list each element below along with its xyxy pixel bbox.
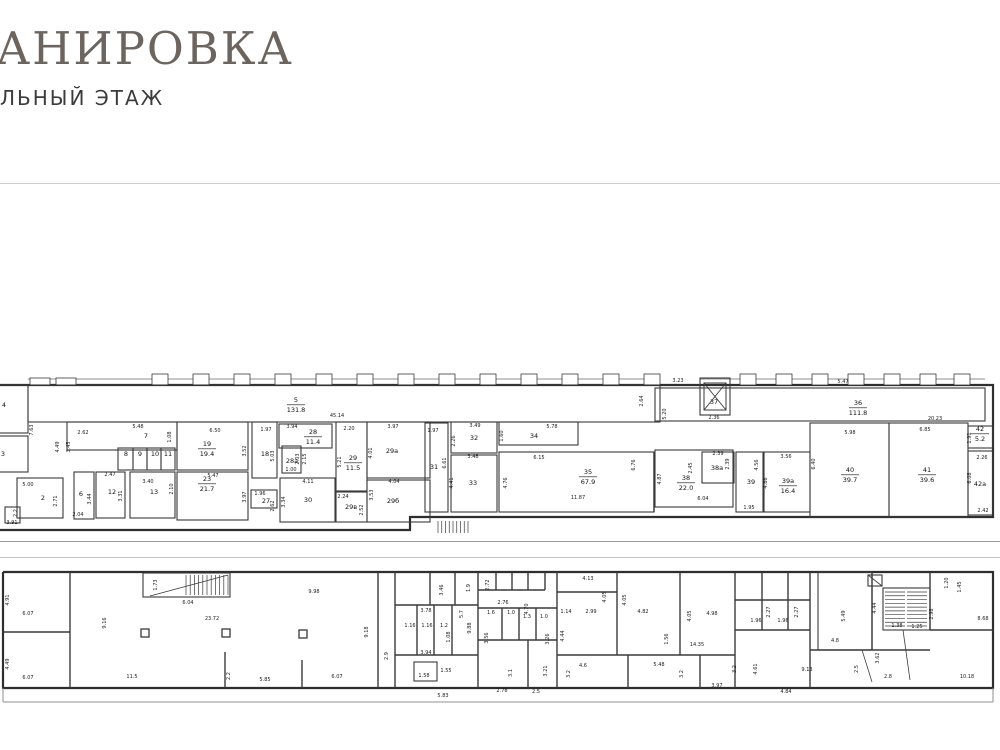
dimension-label: 5.20 xyxy=(662,408,668,419)
dimension-label: 2.26 xyxy=(976,455,987,461)
window-tick xyxy=(884,374,900,385)
dimension-label: 4.91 xyxy=(5,594,11,605)
dimension-label: 1.6 xyxy=(487,610,495,616)
room-4: 4 xyxy=(0,385,28,433)
room-number: 34 xyxy=(530,432,538,440)
dimension-label: 2.36 xyxy=(708,415,719,421)
dimension-label: 1.16 xyxy=(421,623,432,629)
page: АНИРОВКА ЛЬНЫЙ ЭТАЖ 435131.8261213789101… xyxy=(0,0,1000,750)
dimension-label: 1.96 xyxy=(777,618,788,624)
column xyxy=(222,629,230,637)
room-number: 9 xyxy=(138,450,142,458)
room-number: 38 xyxy=(682,474,690,482)
room-number: 41 xyxy=(923,466,931,474)
room-number: 31 xyxy=(430,463,438,471)
dimension-label: 2.15 xyxy=(302,453,308,464)
room-number: 39а xyxy=(782,477,794,485)
room-area: 111.8 xyxy=(849,409,868,417)
dimension-label: 4.13 xyxy=(582,576,593,582)
dimension-label: 3.91 xyxy=(6,520,17,526)
dimension-label: 6.15 xyxy=(533,455,544,461)
dimension-label: 6.40 xyxy=(811,458,817,469)
dimension-label: 1.0 xyxy=(540,614,548,620)
room-area: 5.2 xyxy=(975,435,985,443)
dimension-label: 3.26 xyxy=(545,633,551,644)
dimension-label: 3.97 xyxy=(242,491,248,502)
dimension-label: 10.18 xyxy=(960,674,974,680)
room-29б: 29б xyxy=(367,480,430,522)
room-number: 29а xyxy=(386,447,398,455)
dimension-label: 1.08 xyxy=(167,431,173,442)
dimensions: 4.916.074.496.071.736.0423.729.1611.52.2… xyxy=(5,576,989,699)
dimension-label: 6.08 xyxy=(967,472,973,483)
room-number: 8 xyxy=(124,450,128,458)
window-tick xyxy=(521,374,537,385)
dimension-label: 3.52 xyxy=(242,445,248,456)
dimension-label: 4.41 xyxy=(449,477,455,488)
dimension-label: 14.35 xyxy=(690,642,704,648)
dimension-label: 2.5 xyxy=(854,665,860,673)
room-8: 8 xyxy=(118,448,133,470)
dimension-label: 3.23 xyxy=(672,378,683,384)
window-tick xyxy=(275,374,291,385)
dimension-label: 8.68 xyxy=(977,616,988,622)
room-number: 42а xyxy=(974,480,986,488)
dimension-label: 5.47 xyxy=(837,379,848,385)
room-number: 29б xyxy=(387,497,399,505)
separator-lines xyxy=(0,184,1000,558)
dimension-label: 1.25 xyxy=(911,624,922,630)
window-tick xyxy=(56,378,76,385)
room-number: 2 xyxy=(41,494,45,502)
room-number: 18 xyxy=(261,450,269,458)
dimension-label: 11.5 xyxy=(126,674,137,680)
room-11: 11 xyxy=(161,448,175,470)
room-number: 13 xyxy=(150,488,158,496)
dimension-label: 2.10 xyxy=(169,483,175,494)
dimension-label: 45.14 xyxy=(330,413,344,419)
window-tick xyxy=(480,374,496,385)
dimension-label: 4.76 xyxy=(503,477,509,488)
room-number: 10 xyxy=(151,450,159,458)
dimension-label: 6.07 xyxy=(22,675,33,681)
window-tick xyxy=(954,374,970,385)
dimension-label: 4.87 xyxy=(657,473,663,484)
room-number: 5 xyxy=(294,396,298,404)
dimension-label: 4.49 xyxy=(5,658,11,669)
dimension-label: 2.76 xyxy=(497,600,508,606)
dimension-label: 3.34 xyxy=(281,496,287,507)
dimension-label: 4.82 xyxy=(637,609,648,615)
room-9: 9 xyxy=(133,448,147,470)
room-10: 10 xyxy=(147,448,161,470)
dimension-label: 1.96 xyxy=(750,618,761,624)
dimension-label: 2.99 xyxy=(585,609,596,615)
room-number: 36 xyxy=(854,399,862,407)
dimension-label: 1.2 xyxy=(440,623,448,629)
lower-floor-strip: 4.916.074.496.071.736.0423.729.1611.52.2… xyxy=(3,572,993,702)
dimension-label: 2.24 xyxy=(337,494,348,500)
dimension-label: 1.14 xyxy=(560,609,571,615)
room-number: 29 xyxy=(349,454,357,462)
dimension-label: 9.98 xyxy=(308,589,319,595)
window-tick xyxy=(316,374,332,385)
dimension-label: 4.86 xyxy=(763,477,769,488)
dimension-label: 2.47 xyxy=(104,472,115,478)
dimension-label: 1.73 xyxy=(153,579,159,590)
dimension-label: 5.98 xyxy=(844,430,855,436)
room-area: 11.5 xyxy=(346,464,360,472)
dimension-label: 6.76 xyxy=(631,459,637,470)
dimension-label: 4.56 xyxy=(754,459,760,470)
room-area: 16.4 xyxy=(781,487,795,495)
dimension-label: 2.9 xyxy=(384,652,390,660)
dimension-label: 2.2 xyxy=(226,672,232,680)
dimension-label: 4.44 xyxy=(872,602,878,613)
dimension-label: 1.60 xyxy=(499,430,505,441)
room-number: 3 xyxy=(1,450,5,458)
dimension-label: 5.48 xyxy=(132,424,143,430)
page-subtitle: ЛЬНЫЙ ЭТАЖ xyxy=(0,86,164,110)
dimension-label: 1.20 xyxy=(944,577,950,588)
dimension-label: 3.78 xyxy=(420,608,431,614)
dimension-label: 4.98 xyxy=(706,611,717,617)
window-tick xyxy=(920,374,936,385)
room-number: 29в xyxy=(345,503,357,511)
dimension-label: 5.03 xyxy=(270,450,276,461)
dimension-label: 5.85 xyxy=(259,677,270,683)
dimension-label: 1.08 xyxy=(446,631,452,642)
room-area: 131.8 xyxy=(287,406,306,414)
dimension-label: 4.01 xyxy=(368,447,374,458)
dimension-label: 2.03 xyxy=(295,453,301,464)
dimension-label: 3.40 xyxy=(142,479,153,485)
window-tick xyxy=(562,374,578,385)
window-tick xyxy=(603,374,619,385)
dimension-label: 3.53 xyxy=(369,489,375,500)
stairs xyxy=(885,592,905,626)
room-number: 27 xyxy=(262,497,270,505)
dimension-label: 1.96 xyxy=(254,491,265,497)
dimension-label: 1.9 xyxy=(466,584,472,592)
dimension-label: 2.78 xyxy=(496,688,507,694)
room-number: 32 xyxy=(470,434,478,442)
dimension-label: 2.62 xyxy=(270,500,276,511)
dimension-label: 4.84 xyxy=(780,689,791,695)
dimension-label: 2.8 xyxy=(884,674,892,680)
dimension-label: 3.1 xyxy=(508,669,514,677)
dimension-label: 5.21 xyxy=(337,456,343,467)
room-number: 7 xyxy=(144,432,148,440)
window-tick xyxy=(848,374,864,385)
room-number: 42 xyxy=(976,425,984,433)
dimension-label: 3.2 xyxy=(679,670,685,678)
dimension-label: 3.48 xyxy=(467,454,478,460)
dimension-label: 1.45 xyxy=(957,581,963,592)
dimension-label: 3.46 xyxy=(439,584,445,595)
room-34: 34 xyxy=(499,422,578,445)
room-39а: 39а16.4 xyxy=(764,452,810,512)
dimension-label: 5.83 xyxy=(437,693,448,699)
dimension-label: 3.44 xyxy=(87,493,93,504)
room-area: 22.0 xyxy=(679,484,693,492)
dimension-label: 1.55 xyxy=(440,668,451,674)
column xyxy=(299,630,307,638)
dimension-label: 1.3 xyxy=(523,614,531,620)
room-number: 30 xyxy=(304,496,312,504)
dimension-label: 3.94 xyxy=(286,424,297,430)
dimension-label: 4.05 xyxy=(602,591,608,602)
dimension-label: 2.2 xyxy=(13,509,19,517)
dimension-label: 3.49 xyxy=(469,423,480,429)
dimension-label: 1.95 xyxy=(743,505,754,511)
dimension-label: 6.04 xyxy=(697,496,708,502)
room-area: 11.4 xyxy=(306,438,320,446)
room-33: 33 xyxy=(451,455,497,512)
room-number: 4 xyxy=(2,401,6,409)
dimension-label: 9.18 xyxy=(364,626,370,637)
dimension-label: 2.20 xyxy=(343,426,354,432)
dimension-label: 1.56 xyxy=(664,633,670,644)
dimension-label: 2.72 xyxy=(485,579,491,590)
dimension-label: 6.50 xyxy=(209,428,220,434)
dimension-label: 5.48 xyxy=(653,662,664,668)
room-38: 3822.0 xyxy=(655,450,733,507)
room-number: 38а xyxy=(711,464,723,472)
dimension-label: 4.05 xyxy=(687,610,693,621)
dimension-label: 1.16 xyxy=(404,623,415,629)
room-7: 7 xyxy=(67,422,177,450)
window-tick xyxy=(439,374,455,385)
dimension-label: 5.78 xyxy=(546,424,557,430)
dimension-label: 1.97 xyxy=(260,427,271,433)
dimension-label: 3.97 xyxy=(711,683,722,689)
room-3: 3 xyxy=(0,436,28,472)
column xyxy=(141,629,149,637)
dimension-label: 6.61 xyxy=(442,457,448,468)
dimension-label: 4.61 xyxy=(753,663,759,674)
dimension-label: 2.04 xyxy=(72,512,83,518)
dimension-label: 6.85 xyxy=(919,427,930,433)
dimension-label: 2.98 xyxy=(929,608,935,619)
dimension-label: 2.39 xyxy=(725,458,731,469)
dimension-label: 2.64 xyxy=(639,395,645,406)
dimension-label: 4.49 xyxy=(55,441,61,452)
room-number: 12 xyxy=(108,488,116,496)
dimension-label: 4.44 xyxy=(560,630,566,641)
dimension-label: 3.56 xyxy=(484,632,490,643)
room-number: 19 xyxy=(203,440,211,448)
room-number: 40 xyxy=(846,466,854,474)
dimension-label: 2.27 xyxy=(794,606,800,617)
dimension-label: 2.71 xyxy=(53,495,59,506)
room-number: 6 xyxy=(79,490,83,498)
dimension-label: 3.62 xyxy=(875,652,881,663)
dimension-label: 5.47 xyxy=(207,473,218,479)
dimension-label: 3.21 xyxy=(543,665,549,676)
dimension-label: 4.8 xyxy=(831,638,839,644)
window-tick xyxy=(398,374,414,385)
window-tick xyxy=(812,374,828,385)
dimension-label: 6.04 xyxy=(182,600,193,606)
room-29а: 29а xyxy=(367,422,430,478)
dimension-label: 2.26 xyxy=(451,435,457,446)
dimension-label: 5.49 xyxy=(841,610,847,621)
dimension-label: 3.97 xyxy=(387,424,398,430)
dimension-label: 9.88 xyxy=(467,622,473,633)
window-tick xyxy=(357,374,373,385)
room-number: 11 xyxy=(164,450,172,458)
window-tick xyxy=(644,374,660,385)
dimension-label: 4.11 xyxy=(302,479,313,485)
room-area: 39.7 xyxy=(843,476,857,484)
dimension-label: 1.91 xyxy=(967,432,973,443)
room-number: 33 xyxy=(469,479,477,487)
room-number: 35 xyxy=(584,468,592,476)
dimension-label: 4.6 xyxy=(579,663,587,669)
page-title: АНИРОВКА xyxy=(0,22,294,75)
room-area: 21.7 xyxy=(200,485,214,493)
dimension-label: 2.62 xyxy=(77,430,88,436)
dimension-label: 6.07 xyxy=(331,674,342,680)
dimension-label: 2.39 xyxy=(712,451,723,457)
dimension-label: 7.63 xyxy=(29,424,35,435)
dimension-label: 2.5 xyxy=(532,689,540,695)
window-tick xyxy=(152,374,168,385)
dimension-label: 4.04 xyxy=(388,479,399,485)
room-40: 4039.7 xyxy=(810,423,889,517)
dimension-label: 1.58 xyxy=(418,673,429,679)
dimension-label: 11.87 xyxy=(571,495,585,501)
dimension-label: 1.97 xyxy=(427,428,438,434)
window-tick xyxy=(740,374,756,385)
room-area: 39.6 xyxy=(920,476,934,484)
dimension-label: 3.45 xyxy=(66,441,72,452)
dimension-label: 1.38 xyxy=(891,623,902,629)
dimension-label: 2.45 xyxy=(688,462,694,473)
window-tick xyxy=(776,374,792,385)
dimension-label: 3.94 xyxy=(420,650,431,656)
dimension-label: 2.27 xyxy=(766,606,772,617)
dimension-label: 3.2 xyxy=(732,665,738,673)
dimension-label: 2.52 xyxy=(359,504,365,515)
dimension-label: 23.72 xyxy=(205,616,219,622)
dimension-label: 1.00 xyxy=(285,467,296,473)
dimension-label: 3.31 xyxy=(118,490,124,501)
dimension-label: 4.70 xyxy=(524,603,530,614)
upper-floor-strip: 435131.826121378910111919.42321.71827281… xyxy=(0,374,993,533)
dimension-label: 3.56 xyxy=(780,454,791,460)
stairs xyxy=(438,521,468,533)
window-tick xyxy=(234,374,250,385)
dimension-label: 6.07 xyxy=(22,611,33,617)
room-23: 2321.7 xyxy=(177,472,248,520)
room-number: 28 xyxy=(309,428,317,436)
dimension-label: 5.00 xyxy=(22,482,33,488)
dimension-label: 9.16 xyxy=(102,617,108,628)
dimension-label: 5.7 xyxy=(459,610,465,618)
window-tick xyxy=(30,378,50,385)
dimension-label: 4.05 xyxy=(622,594,628,605)
stairs xyxy=(907,592,927,626)
dimension-label: 1.0 xyxy=(507,610,515,616)
room-number: 39 xyxy=(747,478,755,486)
dimension-label: 2.42 xyxy=(977,508,988,514)
floor-plan: 435131.826121378910111919.42321.71827281… xyxy=(0,0,1000,750)
dimension-label: 9.13 xyxy=(801,667,812,673)
dimension-label: 3.2 xyxy=(566,670,572,678)
room-area: 19.4 xyxy=(200,450,214,458)
room-area: 67.9 xyxy=(581,478,595,486)
dimension-label: 20.23 xyxy=(928,416,942,422)
room-41: 4139.6 xyxy=(889,423,968,517)
window-tick xyxy=(193,374,209,385)
